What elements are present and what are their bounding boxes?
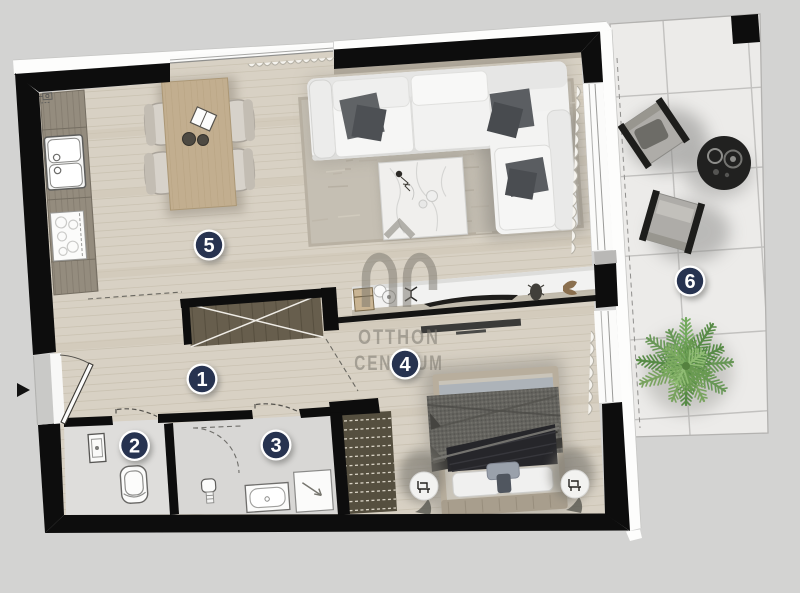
svg-text:3: 3 (270, 435, 281, 457)
svg-text:6: 6 (684, 271, 695, 293)
svg-text:4: 4 (399, 354, 411, 376)
svg-text:OTTHON: OTTHON (358, 326, 440, 349)
svg-text:5: 5 (203, 235, 214, 257)
svg-text:1: 1 (196, 369, 207, 391)
svg-text:2: 2 (129, 436, 140, 458)
